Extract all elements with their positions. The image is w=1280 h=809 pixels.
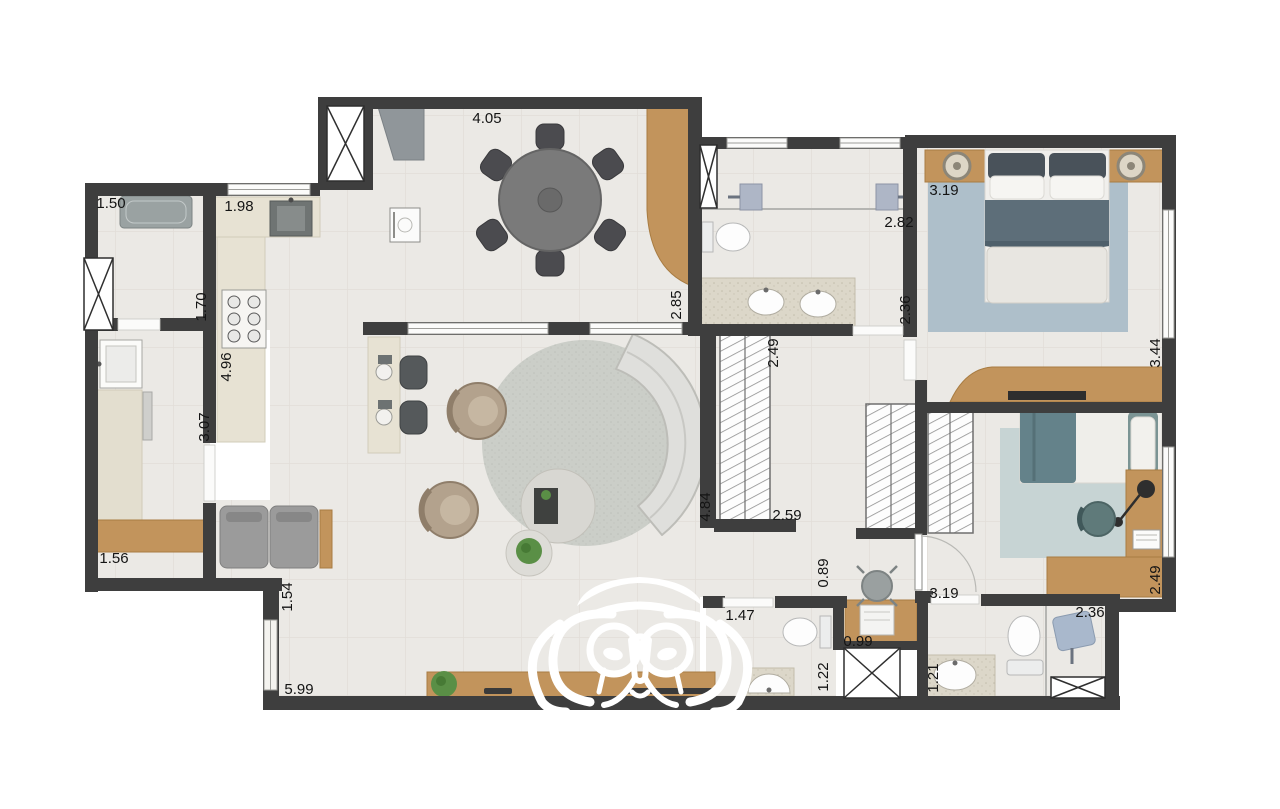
dimension-label: 1.54: [279, 582, 296, 611]
shower-head-1: [740, 184, 762, 210]
desk-lamp-head: [1137, 480, 1155, 498]
wall-segment: [915, 402, 1176, 413]
bath2-toilet-bowl: [1008, 616, 1040, 656]
bed2-pillow-white: [1131, 417, 1155, 473]
wall-segment: [833, 596, 844, 650]
place-setting-1: [376, 364, 392, 380]
shaft-x-3: [700, 145, 717, 208]
master-pillow-dark-2: [1049, 153, 1106, 179]
wall-segment: [905, 135, 1176, 148]
wall-segment: [85, 183, 98, 592]
bar-counter: [368, 337, 400, 453]
lamp2-center: [1127, 162, 1135, 170]
dimension-label: 2.36: [1075, 604, 1104, 621]
dimension-label: 2.36: [897, 295, 914, 324]
bar-stool-2: [400, 401, 427, 434]
wall-segment: [703, 596, 725, 608]
kitchen-faucet: [289, 198, 294, 203]
service-counter: [97, 390, 142, 530]
tv: [1008, 391, 1086, 400]
bath1-sink-2: [800, 291, 836, 317]
wood-panel: [320, 510, 332, 568]
bed2-chair: [1081, 502, 1115, 536]
armchair2-seat: [440, 495, 470, 525]
service-door-leaf: [143, 392, 152, 440]
dimension-label: 2.59: [772, 507, 801, 524]
dimension-label: 1.21: [925, 663, 942, 692]
armchair-cushion-2: [276, 512, 312, 522]
lavabo-toilet-bowl: [783, 618, 817, 646]
plant-detail: [521, 543, 531, 553]
lamp1-center: [953, 162, 961, 170]
lavabo-toilet-tank: [820, 616, 831, 648]
toilet1-tank: [702, 222, 713, 252]
bed2-door-leaf: [915, 534, 922, 590]
dimension-label: 4.96: [218, 352, 235, 381]
wardrobe-3: [928, 409, 973, 533]
dimension-label: 4.05: [472, 110, 501, 127]
wall-segment: [263, 696, 715, 710]
bath1-faucet-1: [764, 288, 769, 293]
shaft-x-1: [84, 258, 113, 330]
wall-segment: [688, 97, 702, 336]
wall-segment: [915, 380, 927, 535]
wardrobe-2: [866, 404, 916, 529]
napkin-2: [378, 400, 392, 409]
dining-table-center: [538, 188, 562, 212]
shaft-x-5: [1051, 677, 1105, 698]
floor-plan-drawing: 4.05 1.50 1.98 1.70 4.96 3.07 1.56 1.54 …: [0, 0, 1280, 809]
place-setting-2: [376, 409, 392, 425]
wall-segment: [700, 324, 853, 336]
master-blanket: [985, 200, 1109, 246]
dimension-label: 1.50: [96, 195, 125, 212]
bath1-faucet-2: [816, 290, 821, 295]
sideboard-object-1: [484, 688, 512, 694]
armchair-cushion-1: [226, 512, 262, 522]
shower-head-2: [876, 184, 898, 210]
watermark-chin: [618, 716, 662, 722]
master-pillow-white-1: [990, 176, 1044, 199]
wall-segment: [85, 578, 282, 591]
bar-stool-1: [400, 356, 427, 389]
master-throw: [987, 247, 1107, 303]
dimension-label: 1.47: [725, 607, 754, 624]
shaft-x-2: [327, 106, 364, 181]
bath1-sink-1: [748, 289, 784, 315]
wall-segment: [856, 528, 920, 539]
wood-bench: [95, 520, 210, 552]
bath2-faucet: [953, 661, 958, 666]
wall-segment: [1105, 599, 1119, 710]
dimension-label: 3.19: [929, 585, 958, 602]
dimension-label: 3.07: [196, 412, 213, 441]
nook-chair: [862, 571, 892, 601]
lavabo-faucet: [767, 688, 772, 693]
wall-segment: [318, 97, 692, 109]
dimension-label: 1.70: [193, 292, 210, 321]
dimension-label: 2.85: [668, 290, 685, 319]
sideboard-plant-detail: [436, 676, 446, 686]
dimension-label: 2.49: [765, 338, 782, 367]
shaft-x-4: [844, 648, 900, 698]
laundry-sink-basin: [106, 346, 136, 382]
armchair1-seat: [468, 396, 498, 426]
sideboard-object-2: [627, 688, 713, 694]
dimension-label: 2.82: [884, 214, 913, 231]
dimension-label: 4.84: [697, 492, 714, 521]
dimension-label: 0.99: [843, 633, 872, 650]
dimension-label: 3.44: [1147, 338, 1164, 367]
bath2-toilet-tank: [1007, 660, 1043, 675]
master-pillow-dark-1: [988, 153, 1045, 179]
dimension-label: 2.49: [1147, 565, 1164, 594]
dimension-label: 3.19: [929, 182, 958, 199]
master-pillow-white-2: [1050, 176, 1104, 199]
napkin-1: [378, 355, 392, 364]
wardrobe-1: [720, 333, 770, 521]
dimension-label: 0.89: [815, 558, 832, 587]
tray-plant: [541, 490, 551, 500]
floor-plan-page: 4.05 1.50 1.98 1.70 4.96 3.07 1.56 1.54 …: [0, 0, 1280, 809]
dimension-label: 1.56: [99, 550, 128, 567]
dimension-label: 5.99: [284, 681, 313, 698]
kitchen-sink-basin: [277, 206, 305, 231]
dimension-label: 1.98: [224, 198, 253, 215]
toilet1-bowl: [716, 223, 750, 251]
bed2-blanket: [1020, 409, 1076, 483]
dimension-label: 1.22: [815, 662, 832, 691]
wall-segment: [203, 503, 216, 591]
